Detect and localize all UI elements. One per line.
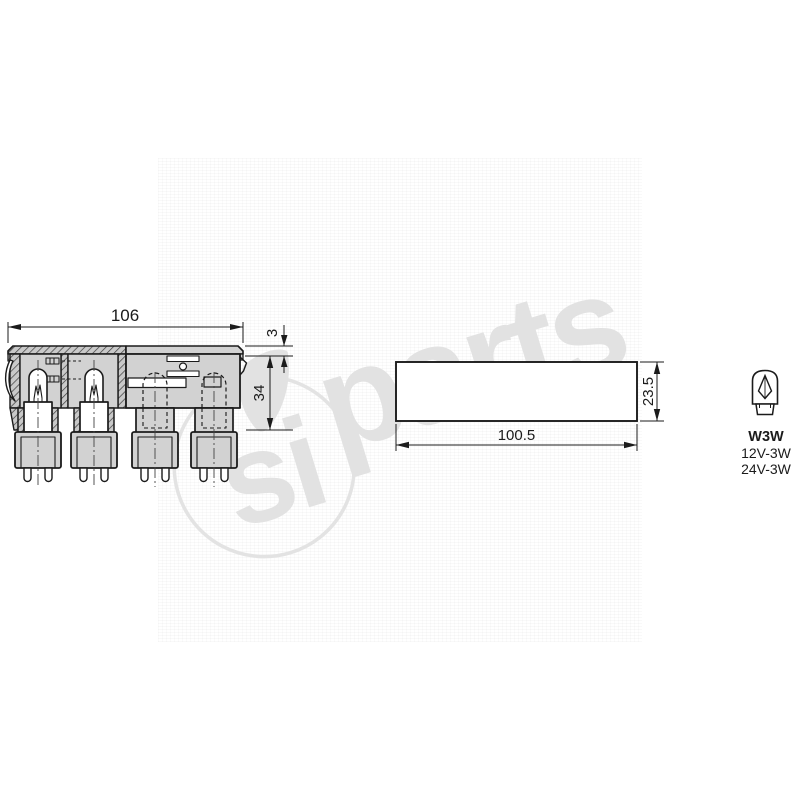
- pin: [200, 468, 207, 482]
- pin: [24, 468, 31, 482]
- pin: [101, 468, 108, 482]
- dimension-module-width-label: 106: [111, 306, 139, 325]
- dimension-module-width: [8, 322, 243, 343]
- section-wall-middle: [61, 354, 68, 408]
- dimension-panel-width-label: 100.5: [498, 427, 536, 444]
- dimension-module-height-label: 34: [251, 385, 268, 402]
- long-slot: [128, 378, 186, 388]
- bulb-spec-block: W3W 12V-3W 24V-3W: [741, 371, 792, 478]
- pin: [141, 468, 148, 482]
- product-technical-drawing: si parts 106: [0, 0, 800, 800]
- pilot-hole: [180, 363, 187, 370]
- bulb-spec-12v-label: 12V-3W: [741, 445, 792, 461]
- module-flange-exterior: [126, 346, 243, 354]
- module-flange-sectioned: [8, 346, 126, 354]
- connector-housings: [15, 432, 237, 482]
- dimension-panel-height-label: 23.5: [640, 377, 657, 406]
- panel-outline: [396, 362, 637, 421]
- vent-slot-top: [167, 356, 199, 362]
- pin: [221, 468, 228, 482]
- vent-slot-middle: [167, 371, 199, 377]
- dimension-flange-thickness-label: 3: [264, 329, 281, 337]
- w3w-bulb-icon: [753, 371, 778, 415]
- pin: [162, 468, 169, 482]
- pin: [45, 468, 52, 482]
- section-wall-right: [118, 354, 126, 408]
- drawing-svg: si parts 106: [0, 0, 800, 800]
- bulb-spec-24v-label: 24V-3W: [741, 461, 792, 477]
- pin: [80, 468, 87, 482]
- bulb-type-label: W3W: [748, 429, 784, 445]
